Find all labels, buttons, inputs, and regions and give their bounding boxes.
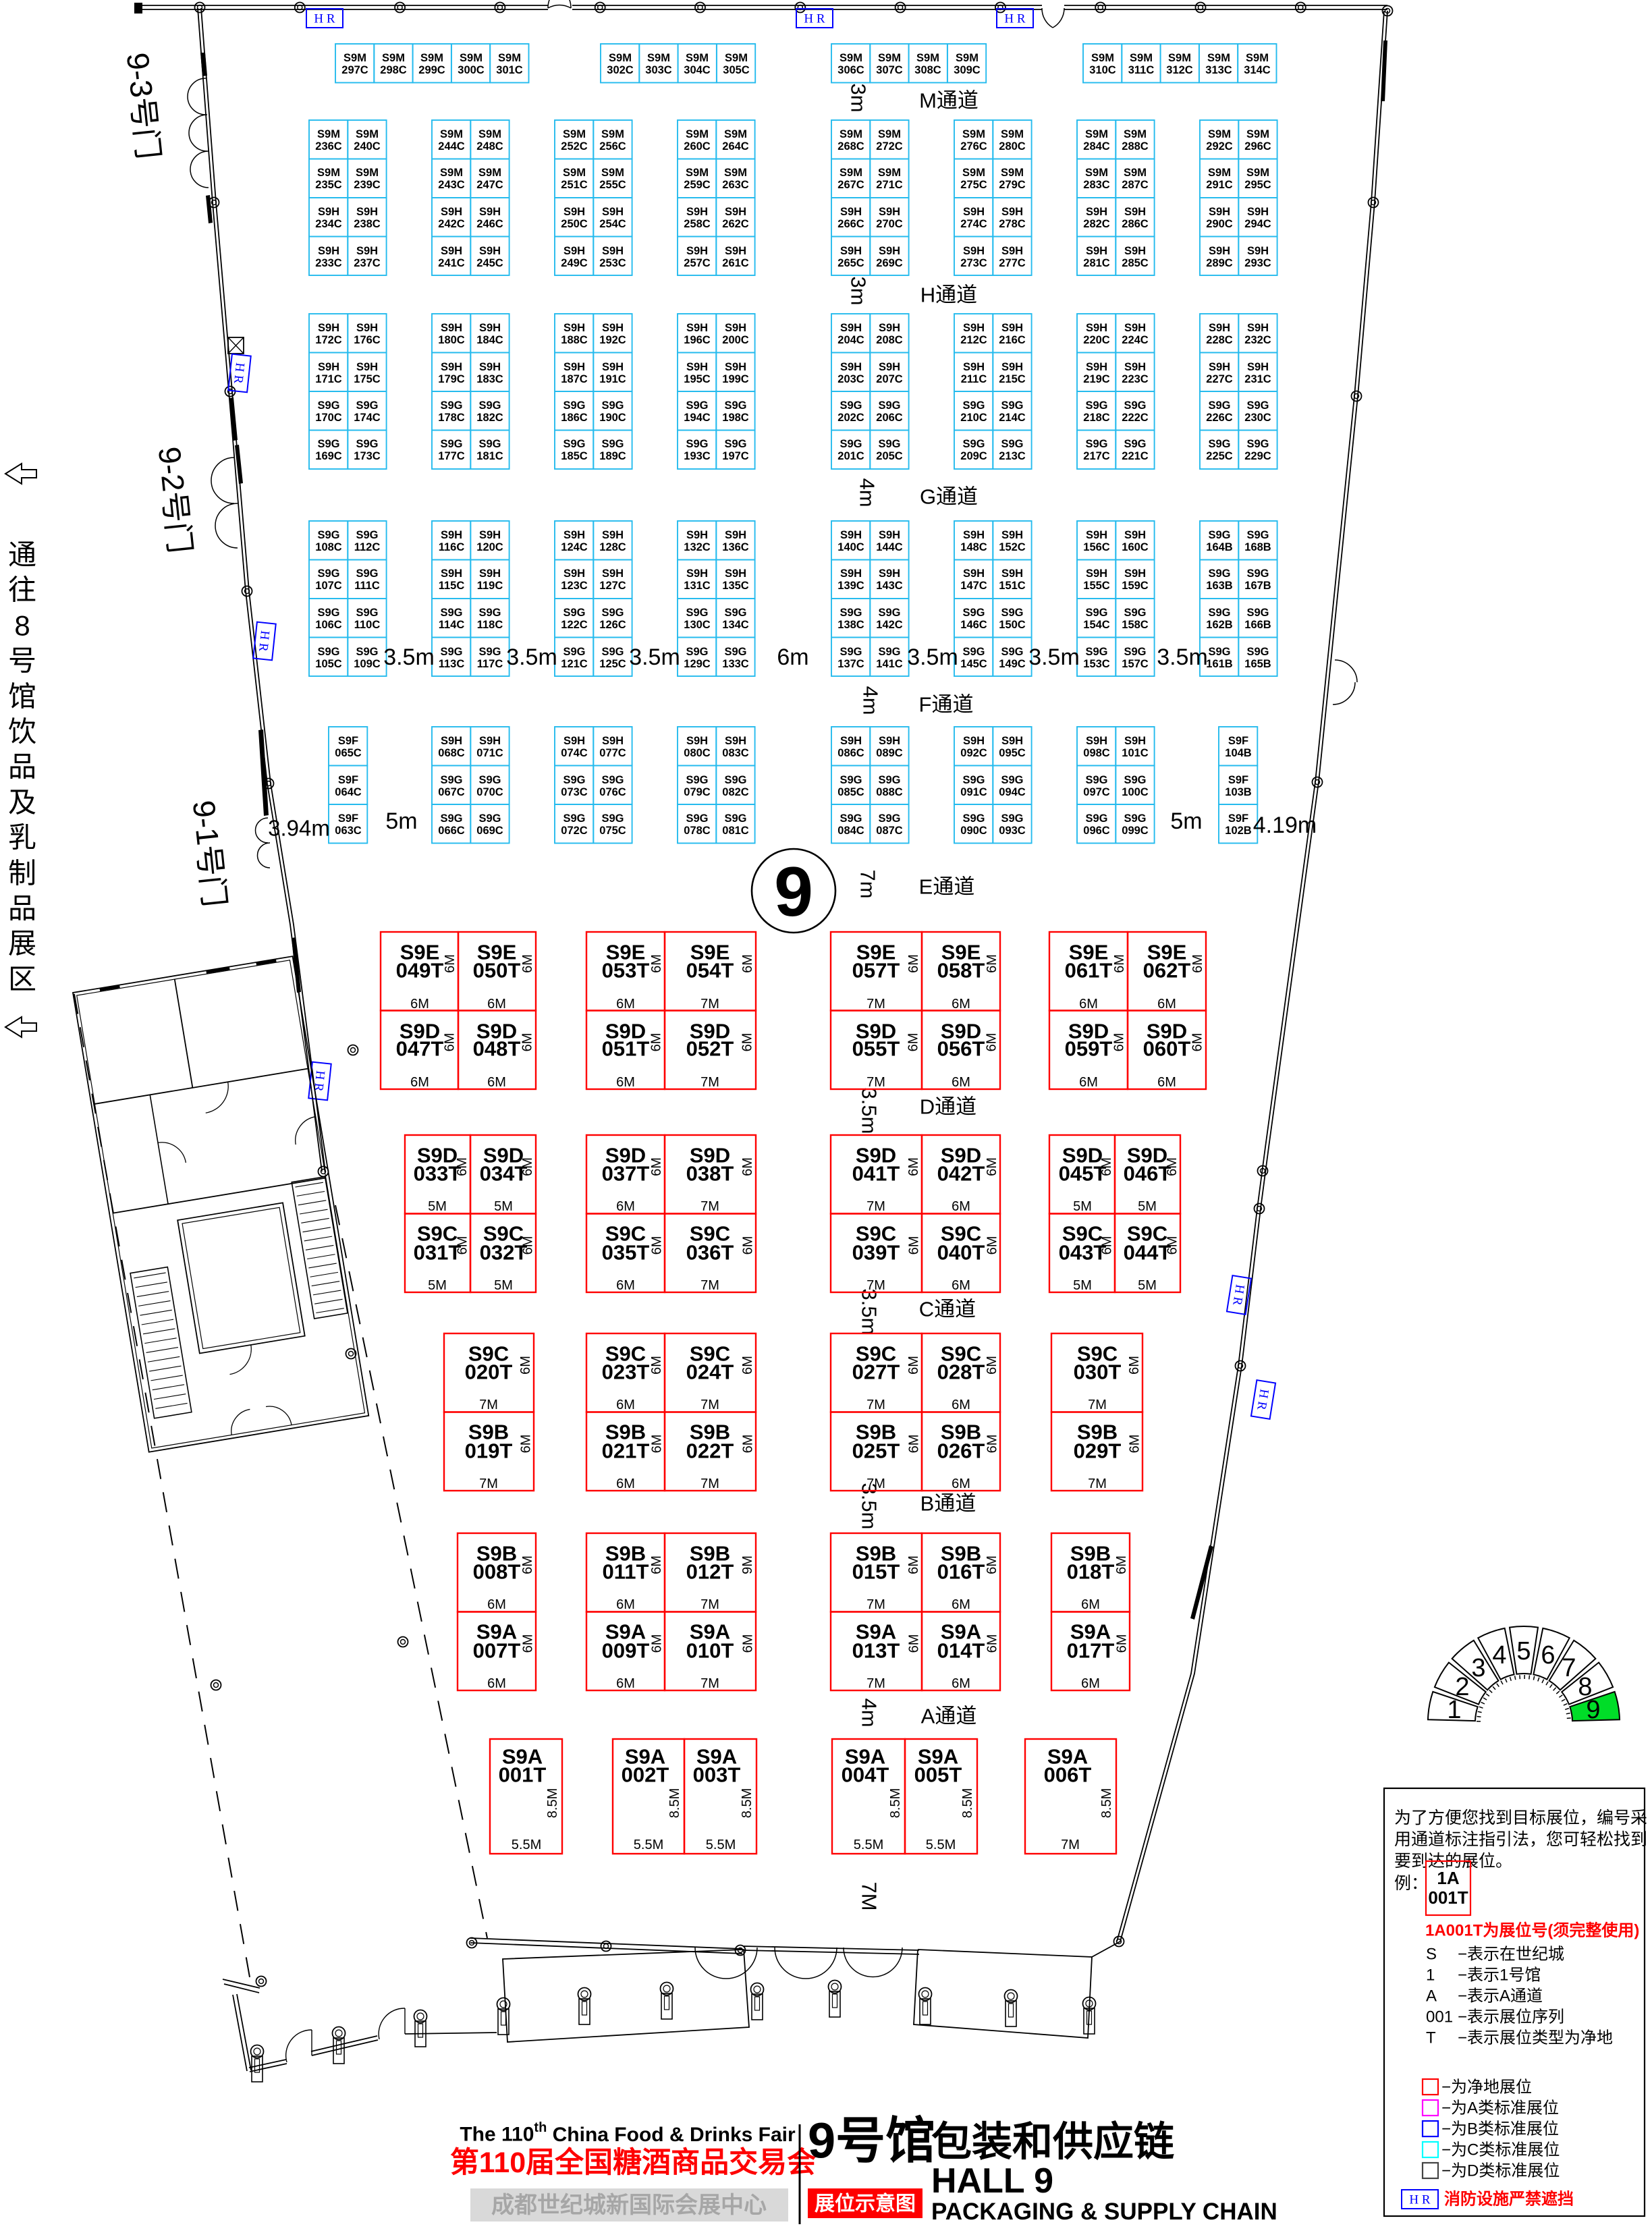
svg-text:5M: 5M bbox=[1073, 1278, 1092, 1293]
svg-text:S9G: S9G bbox=[1085, 812, 1107, 825]
svg-text:6M: 6M bbox=[519, 1435, 534, 1454]
svg-text:HALL 9: HALL 9 bbox=[931, 2161, 1053, 2201]
svg-text:207C: 207C bbox=[876, 373, 903, 385]
svg-text:S9H: S9H bbox=[686, 322, 708, 334]
svg-text:S9G: S9G bbox=[686, 646, 708, 658]
svg-text:S9G: S9G bbox=[478, 646, 501, 658]
svg-text:7M: 7M bbox=[866, 1597, 885, 1612]
svg-text:5M: 5M bbox=[494, 1278, 513, 1293]
svg-text:312C: 312C bbox=[1166, 64, 1193, 76]
svg-text:309C: 309C bbox=[954, 64, 981, 76]
svg-text:025T: 025T bbox=[852, 1439, 900, 1463]
svg-text:S9H: S9H bbox=[840, 245, 862, 257]
svg-text:S9G: S9G bbox=[1208, 438, 1230, 450]
svg-text:111C: 111C bbox=[354, 580, 380, 592]
svg-text:204C: 204C bbox=[837, 334, 864, 346]
svg-text:009T: 009T bbox=[602, 1639, 650, 1663]
svg-text:148C: 148C bbox=[960, 541, 987, 553]
svg-text:S9M: S9M bbox=[317, 167, 340, 179]
svg-text:−为D类标准展位: −为D类标准展位 bbox=[1441, 2162, 1560, 2180]
svg-text:S9M: S9M bbox=[1124, 167, 1147, 179]
svg-text:S9M: S9M bbox=[382, 52, 405, 64]
svg-text:6M: 6M bbox=[740, 1157, 755, 1176]
svg-text:105C: 105C bbox=[315, 658, 342, 670]
svg-text:S9M: S9M bbox=[724, 128, 747, 140]
svg-text:M通道: M通道 bbox=[919, 89, 979, 113]
svg-text:219C: 219C bbox=[1083, 373, 1110, 385]
svg-text:S9M: S9M bbox=[1124, 128, 1147, 140]
svg-text:6M: 6M bbox=[1079, 1075, 1098, 1090]
svg-text:S9G: S9G bbox=[1001, 774, 1023, 786]
svg-text:6M: 6M bbox=[650, 1634, 665, 1653]
svg-text:S9H: S9H bbox=[602, 568, 624, 580]
svg-text:041T: 041T bbox=[852, 1162, 900, 1186]
svg-text:S9H: S9H bbox=[356, 206, 378, 218]
svg-text:6M: 6M bbox=[1190, 1033, 1205, 1052]
svg-text:S9H: S9H bbox=[963, 322, 985, 334]
svg-text:S9H: S9H bbox=[1209, 322, 1230, 334]
svg-text:307C: 307C bbox=[876, 64, 903, 76]
svg-text:S: S bbox=[1426, 1946, 1437, 1964]
svg-text:S9H: S9H bbox=[479, 361, 501, 373]
svg-text:S9G: S9G bbox=[1001, 812, 1023, 825]
svg-text:038T: 038T bbox=[686, 1162, 734, 1186]
svg-text:053T: 053T bbox=[602, 959, 650, 983]
svg-text:S9G: S9G bbox=[962, 438, 985, 450]
svg-text:249C: 249C bbox=[561, 257, 588, 269]
svg-text:品: 品 bbox=[8, 751, 36, 783]
svg-text:5m: 5m bbox=[1170, 808, 1202, 834]
svg-text:039T: 039T bbox=[852, 1241, 900, 1265]
svg-text:S9H: S9H bbox=[879, 322, 900, 334]
svg-text:046T: 046T bbox=[1124, 1162, 1172, 1186]
svg-text:068C: 068C bbox=[438, 747, 465, 759]
svg-text:S9H: S9H bbox=[1209, 245, 1230, 257]
svg-text:S9G: S9G bbox=[356, 438, 378, 450]
svg-text:6M: 6M bbox=[520, 1157, 535, 1176]
svg-text:005T: 005T bbox=[914, 1763, 962, 1787]
svg-text:S9H: S9H bbox=[725, 568, 746, 580]
svg-text:S9H: S9H bbox=[963, 245, 985, 257]
svg-text:120C: 120C bbox=[476, 541, 503, 553]
svg-text:E通道: E通道 bbox=[919, 875, 975, 899]
svg-text:S9G: S9G bbox=[1124, 438, 1146, 450]
svg-text:S9H: S9H bbox=[318, 206, 339, 218]
svg-text:283C: 283C bbox=[1083, 179, 1110, 191]
svg-text:6M: 6M bbox=[520, 954, 535, 973]
svg-text:246C: 246C bbox=[476, 218, 503, 230]
svg-text:6M: 6M bbox=[907, 1236, 922, 1255]
svg-text:S9G: S9G bbox=[356, 568, 378, 580]
svg-text:086C: 086C bbox=[837, 747, 864, 759]
svg-text:−为A类标准展位: −为A类标准展位 bbox=[1441, 2099, 1559, 2118]
svg-text:S9H: S9H bbox=[725, 322, 746, 334]
svg-text:093C: 093C bbox=[999, 825, 1026, 837]
svg-text:229C: 229C bbox=[1244, 450, 1271, 462]
svg-text:070C: 070C bbox=[476, 786, 503, 798]
svg-text:6M: 6M bbox=[616, 1676, 635, 1691]
svg-text:112C: 112C bbox=[354, 541, 381, 553]
svg-text:293C: 293C bbox=[1244, 257, 1271, 269]
svg-text:6M: 6M bbox=[985, 1033, 999, 1052]
svg-text:261C: 261C bbox=[722, 257, 749, 269]
svg-text:109C: 109C bbox=[354, 658, 381, 670]
svg-text:S9G: S9G bbox=[1085, 399, 1107, 412]
svg-text:S9H: S9H bbox=[725, 206, 746, 218]
svg-text:198C: 198C bbox=[722, 412, 749, 424]
svg-text:S9G: S9G bbox=[478, 438, 501, 450]
svg-text:S9H: S9H bbox=[1086, 245, 1107, 257]
svg-text:9号馆: 9号馆 bbox=[808, 2113, 935, 2169]
svg-text:037T: 037T bbox=[602, 1162, 650, 1186]
svg-text:S9H: S9H bbox=[686, 206, 708, 218]
svg-text:S9M: S9M bbox=[878, 128, 901, 140]
svg-text:6M: 6M bbox=[906, 1157, 921, 1176]
svg-text:S9M: S9M bbox=[1130, 52, 1153, 64]
svg-text:用通道标注指引法，您可轻松找到: 用通道标注指引法，您可轻松找到 bbox=[1394, 1830, 1647, 1849]
svg-text:048T: 048T bbox=[473, 1037, 521, 1061]
svg-text:171C: 171C bbox=[315, 373, 342, 385]
svg-text:117C: 117C bbox=[477, 658, 503, 670]
svg-text:267C: 267C bbox=[837, 179, 864, 191]
svg-text:104B: 104B bbox=[1225, 747, 1252, 759]
svg-text:125C: 125C bbox=[599, 658, 626, 670]
svg-text:056T: 056T bbox=[937, 1037, 985, 1061]
svg-text:186C: 186C bbox=[561, 412, 588, 424]
svg-text:7M: 7M bbox=[700, 1199, 719, 1214]
svg-text:S9M: S9M bbox=[440, 128, 463, 140]
svg-text:201C: 201C bbox=[837, 450, 864, 462]
svg-text:7M: 7M bbox=[700, 997, 719, 1012]
svg-text:030T: 030T bbox=[1074, 1360, 1122, 1384]
svg-text:2: 2 bbox=[1455, 1673, 1469, 1701]
svg-text:6M: 6M bbox=[518, 1356, 533, 1375]
svg-text:193C: 193C bbox=[684, 450, 711, 462]
svg-text:S9G: S9G bbox=[839, 774, 862, 786]
svg-text:058T: 058T bbox=[937, 959, 985, 983]
svg-text:F通道: F通道 bbox=[919, 693, 974, 717]
svg-text:273C: 273C bbox=[960, 257, 987, 269]
svg-text:S9M: S9M bbox=[420, 52, 443, 64]
svg-text:194C: 194C bbox=[684, 412, 711, 424]
svg-text:121C: 121C bbox=[561, 658, 588, 670]
svg-text:029T: 029T bbox=[1074, 1439, 1122, 1463]
svg-text:181C: 181C bbox=[476, 450, 503, 462]
svg-text:S9G: S9G bbox=[878, 399, 900, 412]
svg-text:S9G: S9G bbox=[1001, 607, 1023, 619]
svg-text:6M: 6M bbox=[410, 1075, 429, 1090]
svg-text:S9H: S9H bbox=[1001, 322, 1023, 334]
svg-text:275C: 275C bbox=[960, 179, 987, 191]
svg-text:S9M: S9M bbox=[916, 52, 939, 64]
svg-text:116C: 116C bbox=[439, 541, 465, 553]
svg-text:H R: H R bbox=[1004, 12, 1025, 26]
svg-text:213C: 213C bbox=[999, 450, 1026, 462]
svg-text:6M: 6M bbox=[952, 1199, 970, 1214]
svg-text:5M: 5M bbox=[1073, 1199, 1092, 1214]
svg-text:6M: 6M bbox=[1190, 954, 1205, 973]
svg-text:S9G: S9G bbox=[1085, 774, 1107, 786]
svg-text:149C: 149C bbox=[999, 658, 1026, 670]
svg-text:S9H: S9H bbox=[879, 245, 900, 257]
svg-text:S9M: S9M bbox=[460, 52, 483, 64]
svg-text:S9H: S9H bbox=[1124, 735, 1146, 747]
svg-text:S9H: S9H bbox=[840, 206, 862, 218]
svg-text:154C: 154C bbox=[1083, 619, 1110, 631]
svg-text:S9H: S9H bbox=[1124, 529, 1146, 541]
svg-text:S9H: S9H bbox=[1001, 206, 1023, 218]
svg-text:成都世纪城新国际会展中心: 成都世纪城新国际会展中心 bbox=[491, 2192, 767, 2218]
svg-text:S9H: S9H bbox=[963, 735, 985, 747]
svg-text:7M: 7M bbox=[866, 1398, 885, 1412]
svg-text:S9H: S9H bbox=[1086, 568, 1107, 580]
svg-text:S9H: S9H bbox=[1001, 735, 1023, 747]
svg-text:T: T bbox=[1426, 2029, 1436, 2047]
svg-text:S9H: S9H bbox=[1086, 322, 1107, 334]
svg-text:6M: 6M bbox=[487, 1676, 506, 1691]
svg-text:169C: 169C bbox=[315, 450, 342, 462]
svg-text:S9H: S9H bbox=[441, 529, 462, 541]
svg-text:271C: 271C bbox=[876, 179, 903, 191]
svg-text:145C: 145C bbox=[960, 658, 987, 670]
svg-text:074C: 074C bbox=[561, 747, 588, 759]
svg-text:126C: 126C bbox=[599, 619, 626, 631]
svg-text:S9G: S9G bbox=[1085, 607, 1107, 619]
svg-text:S9H: S9H bbox=[441, 322, 462, 334]
svg-text:036T: 036T bbox=[686, 1241, 734, 1265]
svg-text:−表示1号馆: −表示1号馆 bbox=[1458, 1966, 1541, 1985]
svg-text:290C: 290C bbox=[1206, 218, 1233, 230]
svg-text:6M: 6M bbox=[616, 1199, 635, 1214]
svg-text:S9G: S9G bbox=[686, 438, 708, 450]
svg-text:6M: 6M bbox=[985, 1236, 1000, 1255]
svg-text:236C: 236C bbox=[315, 140, 342, 153]
svg-text:S9G: S9G bbox=[1246, 646, 1269, 658]
svg-text:S9G: S9G bbox=[686, 812, 708, 825]
svg-text:6M: 6M bbox=[1115, 1634, 1130, 1653]
svg-text:6M: 6M bbox=[952, 997, 970, 1012]
svg-text:231C: 231C bbox=[1244, 373, 1271, 385]
svg-text:233C: 233C bbox=[315, 257, 342, 269]
svg-text:S9G: S9G bbox=[478, 607, 501, 619]
svg-text:制: 制 bbox=[8, 858, 36, 889]
svg-text:272C: 272C bbox=[876, 140, 903, 153]
svg-text:S9H: S9H bbox=[1001, 245, 1023, 257]
svg-text:S9F: S9F bbox=[1228, 812, 1248, 825]
svg-text:033T: 033T bbox=[414, 1162, 462, 1186]
svg-text:S9H: S9H bbox=[963, 206, 985, 218]
svg-text:S9F: S9F bbox=[338, 812, 358, 825]
svg-text:S9M: S9M bbox=[1085, 128, 1108, 140]
svg-text:8.5M: 8.5M bbox=[667, 1788, 682, 1818]
svg-text:S9M: S9M bbox=[1001, 128, 1024, 140]
svg-text:065C: 065C bbox=[335, 747, 362, 759]
svg-text:184C: 184C bbox=[476, 334, 503, 346]
svg-text:241C: 241C bbox=[438, 257, 465, 269]
svg-text:S9G: S9G bbox=[601, 774, 624, 786]
svg-text:S9G: S9G bbox=[962, 607, 985, 619]
svg-text:H R: H R bbox=[256, 630, 272, 652]
svg-text:001T: 001T bbox=[499, 1763, 547, 1787]
svg-text:202C: 202C bbox=[837, 412, 864, 424]
svg-text:馆: 馆 bbox=[8, 681, 36, 713]
svg-text:260C: 260C bbox=[684, 140, 711, 153]
svg-text:6M: 6M bbox=[520, 1033, 535, 1052]
svg-text:168B: 168B bbox=[1244, 541, 1271, 553]
svg-text:S9H: S9H bbox=[840, 568, 862, 580]
svg-text:282C: 282C bbox=[1083, 218, 1110, 230]
svg-text:S9G: S9G bbox=[724, 607, 746, 619]
svg-text:6M: 6M bbox=[906, 954, 921, 973]
svg-text:S9H: S9H bbox=[563, 568, 585, 580]
svg-text:103B: 103B bbox=[1225, 786, 1252, 798]
svg-text:S9M: S9M bbox=[686, 167, 709, 179]
svg-text:S9G: S9G bbox=[724, 812, 746, 825]
svg-text:S9G: S9G bbox=[839, 438, 862, 450]
svg-text:S9M: S9M bbox=[601, 128, 624, 140]
svg-text:240C: 240C bbox=[354, 140, 381, 153]
svg-text:131C: 131C bbox=[684, 580, 711, 592]
svg-text:S9G: S9G bbox=[1208, 529, 1230, 541]
svg-text:S9G: S9G bbox=[356, 607, 378, 619]
svg-text:6M: 6M bbox=[1100, 1236, 1115, 1255]
svg-text:S9G: S9G bbox=[317, 646, 339, 658]
svg-text:217C: 217C bbox=[1083, 450, 1110, 462]
svg-text:017T: 017T bbox=[1067, 1639, 1115, 1663]
svg-text:6M: 6M bbox=[649, 954, 664, 973]
svg-text:8.5M: 8.5M bbox=[740, 1788, 754, 1818]
svg-text:256C: 256C bbox=[599, 140, 626, 153]
svg-text:往: 往 bbox=[8, 574, 36, 606]
svg-text:301C: 301C bbox=[496, 64, 523, 76]
svg-text:6M: 6M bbox=[741, 1634, 756, 1653]
svg-text:072C: 072C bbox=[561, 825, 588, 837]
svg-text:102B: 102B bbox=[1225, 825, 1252, 837]
svg-text:139C: 139C bbox=[837, 580, 864, 592]
svg-text:097C: 097C bbox=[1083, 786, 1110, 798]
svg-text:250C: 250C bbox=[561, 218, 588, 230]
svg-text:6M: 6M bbox=[1165, 1157, 1180, 1176]
svg-text:255C: 255C bbox=[599, 179, 626, 191]
svg-text:6M: 6M bbox=[1112, 954, 1127, 973]
svg-text:136C: 136C bbox=[722, 541, 749, 553]
svg-text:6M: 6M bbox=[740, 1033, 755, 1052]
svg-text:7M: 7M bbox=[858, 1881, 881, 1910]
svg-text:285C: 285C bbox=[1122, 257, 1149, 269]
svg-text:196C: 196C bbox=[684, 334, 711, 346]
svg-text:280C: 280C bbox=[999, 140, 1026, 153]
svg-text:6M: 6M bbox=[740, 1356, 755, 1375]
svg-text:6M: 6M bbox=[907, 1435, 922, 1454]
svg-text:165B: 165B bbox=[1244, 658, 1271, 670]
svg-text:6M: 6M bbox=[650, 1236, 665, 1255]
svg-text:243C: 243C bbox=[438, 179, 465, 191]
svg-text:063C: 063C bbox=[335, 825, 362, 837]
svg-text:7M: 7M bbox=[700, 1398, 719, 1412]
svg-text:221C: 221C bbox=[1122, 450, 1149, 462]
svg-text:6M: 6M bbox=[616, 997, 635, 1012]
svg-text:S9G: S9G bbox=[478, 774, 501, 786]
svg-text:023T: 023T bbox=[602, 1360, 650, 1384]
svg-text:6M: 6M bbox=[410, 997, 429, 1012]
svg-text:9: 9 bbox=[774, 853, 813, 931]
svg-text:H R: H R bbox=[804, 12, 825, 26]
svg-text:6M: 6M bbox=[616, 1075, 635, 1090]
svg-text:294C: 294C bbox=[1244, 218, 1271, 230]
svg-text:4.19m: 4.19m bbox=[1253, 812, 1317, 838]
svg-text:159C: 159C bbox=[1122, 580, 1149, 592]
svg-text:257C: 257C bbox=[684, 257, 711, 269]
svg-text:S9H: S9H bbox=[725, 735, 746, 747]
svg-text:S9H: S9H bbox=[840, 322, 862, 334]
svg-text:S9G: S9G bbox=[1208, 399, 1230, 412]
svg-text:314C: 314C bbox=[1244, 64, 1271, 76]
svg-text:001T: 001T bbox=[1428, 1887, 1468, 1908]
svg-text:3.94m: 3.94m bbox=[268, 816, 330, 841]
svg-text:6M: 6M bbox=[906, 1555, 921, 1574]
svg-text:094C: 094C bbox=[999, 786, 1026, 798]
svg-text:S9H: S9H bbox=[479, 529, 501, 541]
svg-text:第110届全国糖酒商品交易会: 第110届全国糖酒商品交易会 bbox=[450, 2146, 816, 2179]
svg-text:096C: 096C bbox=[1083, 825, 1110, 837]
svg-text:S9G: S9G bbox=[962, 646, 985, 658]
svg-text:S9G: S9G bbox=[878, 812, 900, 825]
svg-text:035T: 035T bbox=[602, 1241, 650, 1265]
svg-text:S9H: S9H bbox=[686, 245, 708, 257]
svg-text:S9G: S9G bbox=[563, 438, 585, 450]
svg-text:6M: 6M bbox=[952, 1597, 970, 1612]
svg-text:−为C类标准展位: −为C类标准展位 bbox=[1441, 2141, 1560, 2159]
svg-text:3.5m: 3.5m bbox=[1157, 644, 1208, 670]
svg-text:147C: 147C bbox=[960, 580, 987, 592]
svg-text:248C: 248C bbox=[476, 140, 503, 153]
svg-text:100C: 100C bbox=[1122, 786, 1149, 798]
svg-text:S9M: S9M bbox=[1085, 167, 1108, 179]
svg-text:245C: 245C bbox=[476, 257, 503, 269]
svg-text:130C: 130C bbox=[684, 619, 711, 631]
svg-text:S9M: S9M bbox=[725, 52, 748, 64]
svg-text:077C: 077C bbox=[599, 747, 626, 759]
svg-text:5M: 5M bbox=[428, 1278, 447, 1293]
svg-text:110C: 110C bbox=[354, 619, 381, 631]
svg-text:7M: 7M bbox=[700, 1278, 719, 1293]
svg-text:259C: 259C bbox=[684, 179, 711, 191]
svg-text:022T: 022T bbox=[686, 1439, 734, 1463]
svg-text:S9H: S9H bbox=[479, 568, 501, 580]
svg-text:5M: 5M bbox=[428, 1199, 447, 1214]
svg-text:137C: 137C bbox=[837, 658, 864, 670]
svg-text:214C: 214C bbox=[999, 412, 1026, 424]
svg-text:108C: 108C bbox=[315, 541, 342, 553]
svg-text:The 110th China Food & Drinks: The 110th China Food & Drinks Fair bbox=[460, 2120, 796, 2146]
svg-text:258C: 258C bbox=[684, 218, 711, 230]
svg-text:287C: 287C bbox=[1122, 179, 1149, 191]
svg-text:266C: 266C bbox=[837, 218, 864, 230]
svg-text:S9H: S9H bbox=[1247, 361, 1269, 373]
svg-text:6M: 6M bbox=[985, 1157, 999, 1176]
svg-text:S9H: S9H bbox=[479, 206, 501, 218]
svg-text:S9H: S9H bbox=[318, 361, 339, 373]
svg-text:S9M: S9M bbox=[1207, 52, 1230, 64]
svg-text:6: 6 bbox=[1541, 1641, 1555, 1670]
svg-text:S9F: S9F bbox=[338, 735, 358, 747]
svg-text:S9H: S9H bbox=[840, 735, 862, 747]
svg-text:PACKAGING & SUPPLY CHAIN: PACKAGING & SUPPLY CHAIN bbox=[931, 2199, 1277, 2225]
svg-text:包装和供应链: 包装和供应链 bbox=[931, 2120, 1174, 2165]
svg-text:265C: 265C bbox=[837, 257, 864, 269]
svg-text:S9G: S9G bbox=[317, 568, 339, 580]
svg-text:S9H: S9H bbox=[602, 322, 624, 334]
